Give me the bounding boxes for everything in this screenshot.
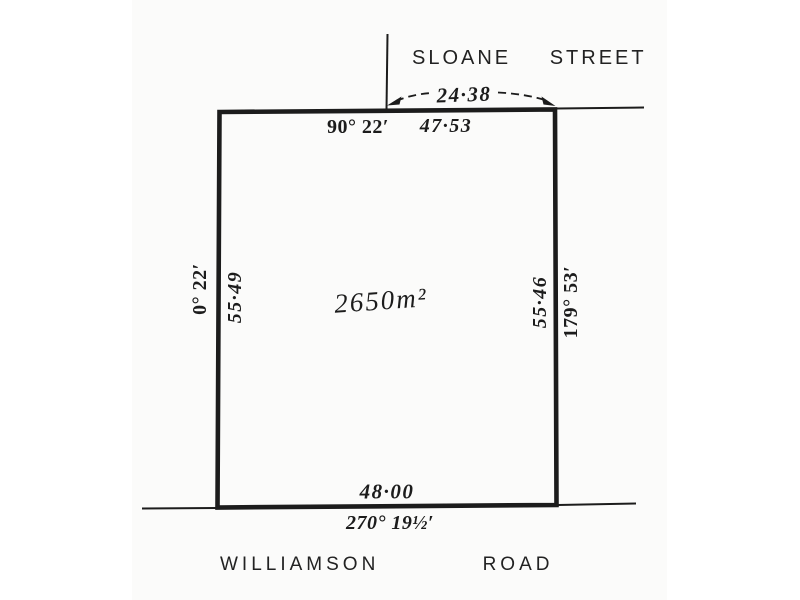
williamson-road-line-east [558,504,636,506]
street-name-williamson: WILLIAMSON ROAD [220,555,553,574]
east-boundary-bearing: 179° 53′ [561,266,581,339]
frontage-dim-line-left [396,93,432,101]
frontage-arrowhead-right-icon [542,97,556,107]
street-name-sloane: SLOANE STREET [412,48,647,68]
south-boundary-bearing: 270° 19½′ [346,513,434,533]
east-boundary-distance: 55·46 [530,276,550,329]
survey-plan: SLOANE STREET WILLIAMSON ROAD 24·38 90° … [0,0,800,600]
south-boundary-distance: 48·00 [360,482,415,503]
frontage-dim-line-right [498,93,548,102]
west-boundary-distance: 55·49 [225,271,245,324]
street-corner-line [387,34,388,110]
sloane-street-line [557,108,644,109]
parcel-area-label: 2650m² [333,284,428,317]
north-boundary-bearing: 90° 22′ [327,117,389,137]
williamson-road-line-west [142,508,217,509]
frontage-arrowhead-left-icon [387,97,402,106]
west-boundary-bearing: 0° 22′ [190,263,210,315]
north-boundary-distance: 47·53 [420,116,473,136]
frontage-dimension: 24·38 [436,84,491,107]
